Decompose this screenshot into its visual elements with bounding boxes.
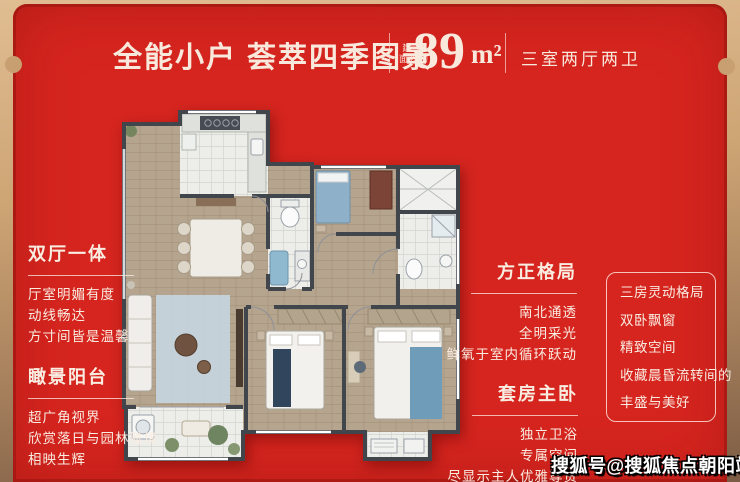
area-value: 89 xyxy=(413,22,465,81)
callout-dual-hall-title: 双厅一体 xyxy=(28,240,168,266)
callout-square-layout-title: 方正格局 xyxy=(412,258,577,284)
feature-box: 三房灵动格局 双卧飘窗 精致空间 收藏晨昏流转间的 丰盛与美好 xyxy=(606,272,716,422)
callout-line: 厅室明媚有度 xyxy=(28,284,168,305)
callout-divider xyxy=(471,293,577,294)
callout-divider xyxy=(28,398,134,399)
feature-item: 精致空间 xyxy=(620,341,715,355)
callout-line: 相映生辉 xyxy=(28,449,180,470)
header-divider-2 xyxy=(505,33,506,73)
callout-line: 鲜氧于室内循环跃动 xyxy=(412,344,577,365)
callout-dual-hall: 双厅一体 厅室明媚有度 动线畅达 方寸间皆是温馨 xyxy=(28,240,168,347)
callout-line: 独立卫浴 xyxy=(403,424,578,445)
callout-line: 动线畅达 xyxy=(28,305,168,326)
callout-view-balcony: 瞰景阳台 超广角视界 欣赏落日与园林雅境 相映生辉 xyxy=(28,363,180,470)
callout-divider xyxy=(28,275,134,276)
feature-list: 三房灵动格局 双卧飘窗 精致空间 收藏晨昏流转间的 丰盛与美好 xyxy=(607,273,715,410)
callout-divider xyxy=(472,415,578,416)
ticket-notch-left xyxy=(5,56,22,73)
callout-view-balcony-title: 瞰景阳台 xyxy=(28,363,180,389)
feature-item: 收藏晨昏流转间的 xyxy=(620,369,715,383)
feature-item: 丰盛与美好 xyxy=(620,396,715,410)
callout-line: 南北通透 xyxy=(412,302,577,323)
header-divider-1 xyxy=(389,33,390,73)
watermark: 搜狐号@搜狐焦点朝阳站 xyxy=(551,452,740,478)
feature-item: 三房灵动格局 xyxy=(620,286,715,300)
feature-item: 双卧飘窗 xyxy=(620,314,715,328)
callout-square-layout: 方正格局 南北通透 全明采光 鲜氧于室内循环跃动 xyxy=(412,258,577,365)
poster: 全能小户 荟萃四季图景 建 筑 面积约 89 m² 三室两厅两卫 xyxy=(0,0,740,482)
callout-line: 欣赏落日与园林雅境 xyxy=(28,428,180,449)
callout-line: 全明采光 xyxy=(412,323,577,344)
callout-line: 超广角视界 xyxy=(28,407,180,428)
area-unit: m² xyxy=(471,39,502,70)
ticket-notch-right xyxy=(718,58,735,75)
callout-suite-master-title: 套房主卧 xyxy=(403,380,578,406)
poster-title: 全能小户 荟萃四季图景 xyxy=(113,34,433,76)
room-count-label: 三室两厅两卫 xyxy=(521,45,641,70)
callout-line: 方寸间皆是温馨 xyxy=(28,326,168,347)
